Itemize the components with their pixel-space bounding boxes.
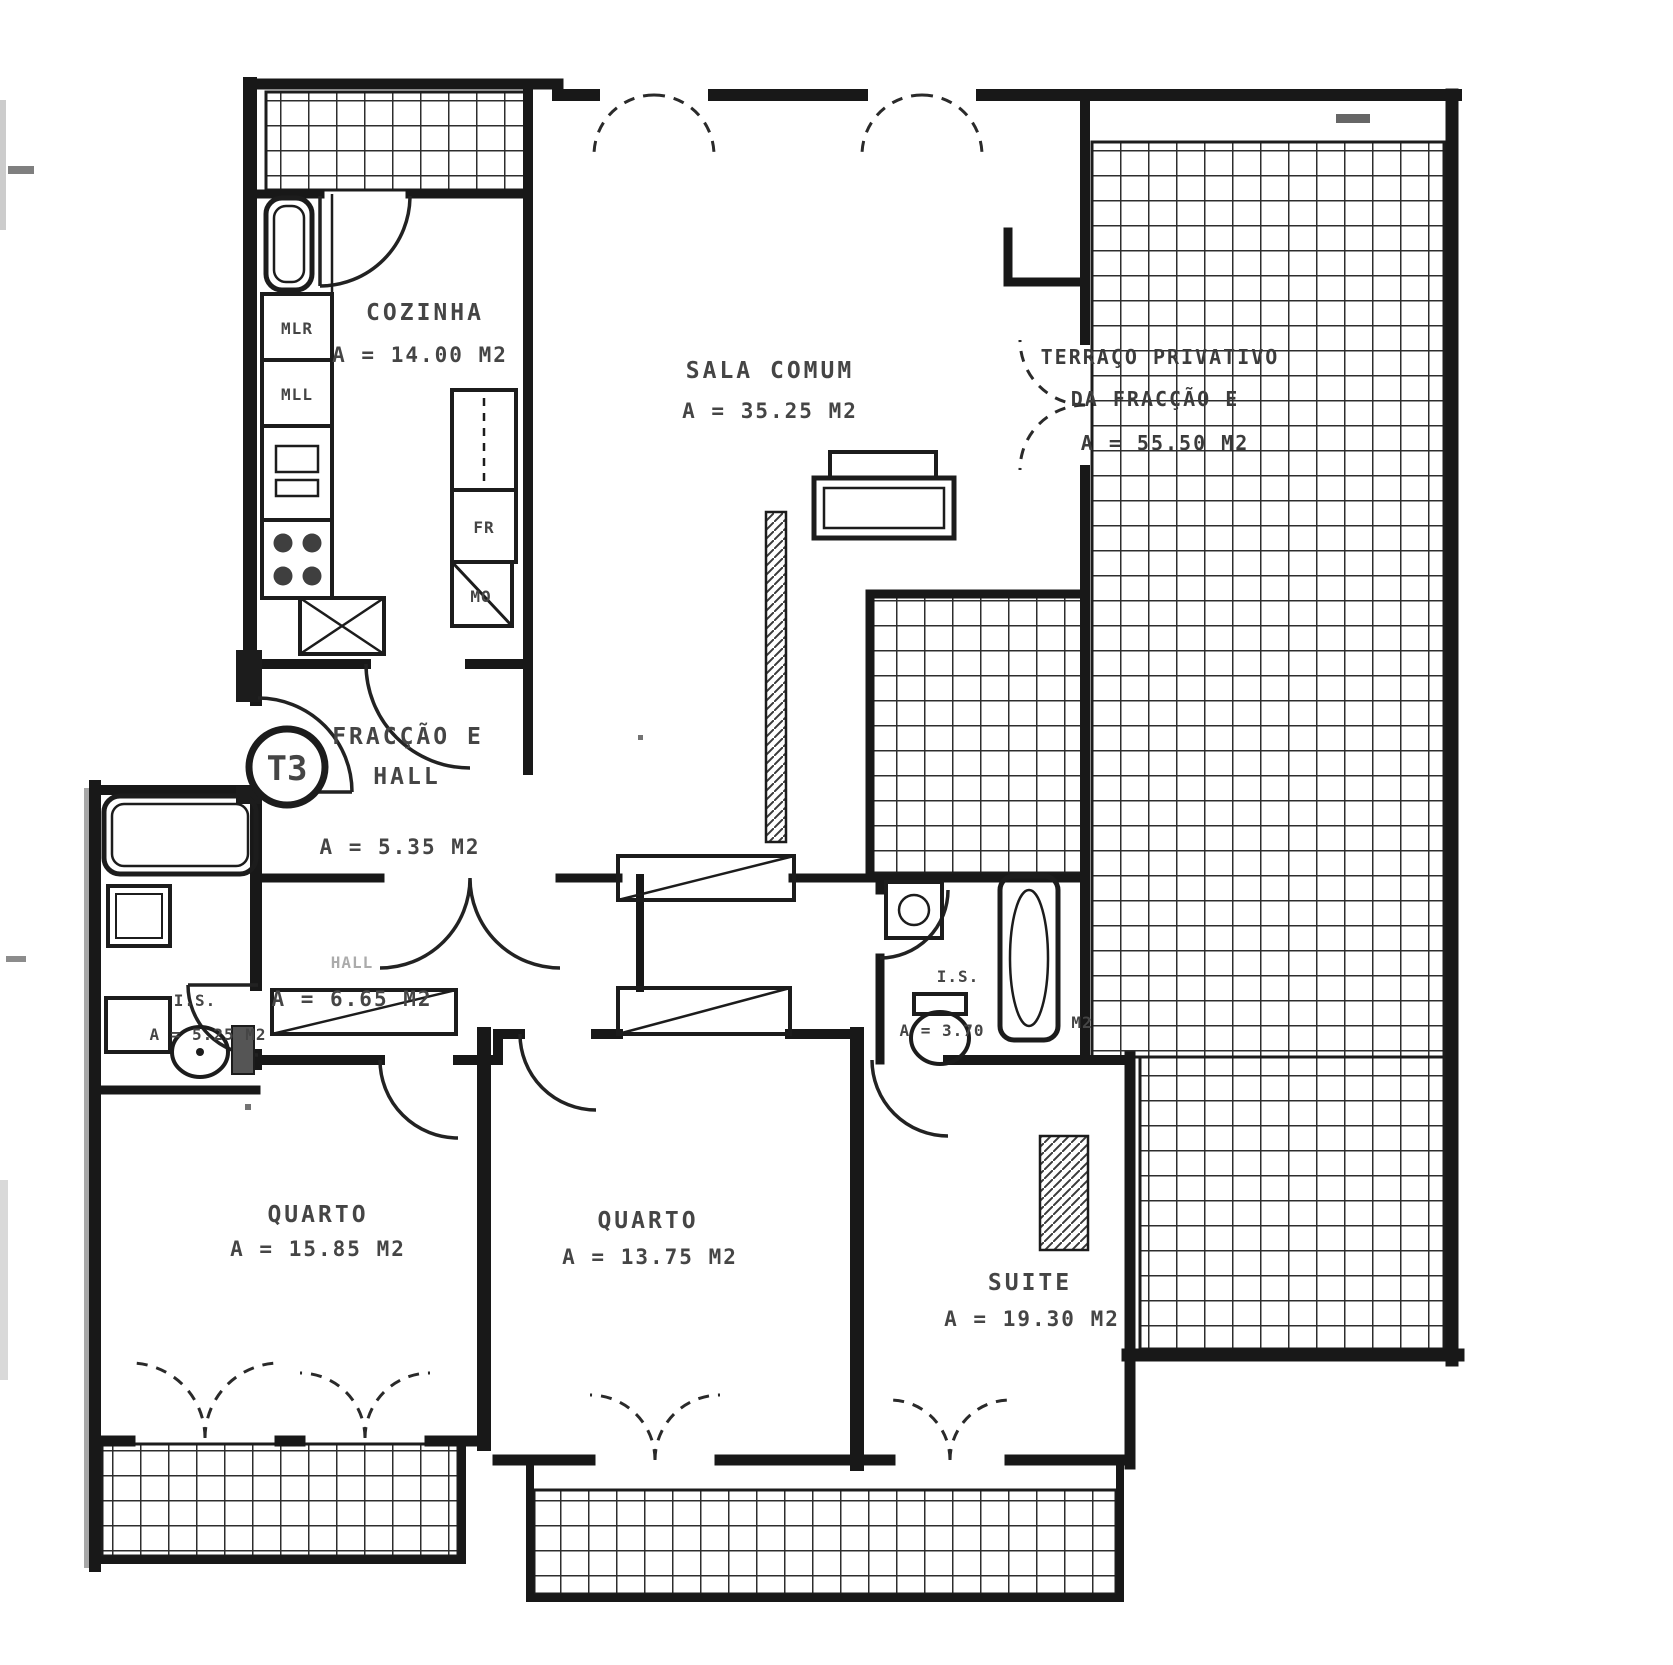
- hall-name: HALL: [331, 953, 374, 972]
- quarto-middle-area: A = 13.75 M2: [562, 1245, 738, 1269]
- closet: [618, 856, 794, 900]
- balcony-right-tiles: [534, 1490, 1116, 1594]
- bathtub: [1000, 876, 1058, 1040]
- suite-shaft: [1040, 1136, 1088, 1250]
- quarto-left-name: QUARTO: [267, 1202, 368, 1228]
- balcony-left-tiles: [102, 1444, 458, 1556]
- quarto-left-door: [380, 1060, 458, 1138]
- terraco-name-line2: DA FRACÇÃO E: [1071, 387, 1240, 411]
- terraco-area: A = 55.50 M2: [1081, 431, 1250, 455]
- unit-badge: T3: [249, 729, 325, 805]
- hall-entrada-area: A = 5.35 M2: [319, 835, 480, 859]
- cooktop: [262, 520, 332, 598]
- kitchen-balcony-tiles: [266, 92, 526, 190]
- sala-furniture: [814, 452, 954, 538]
- hall-entrada-line1: FRACÇÃO E: [332, 722, 484, 750]
- bathtub: [104, 796, 256, 874]
- closet: [618, 988, 790, 1034]
- is-left-area: A = 5.25 M2: [150, 1025, 267, 1044]
- quarto-middle-name: QUARTO: [597, 1208, 698, 1234]
- kitchen-hall-door: [366, 664, 470, 768]
- is-right-area: A = 3.70: [899, 1021, 984, 1040]
- terrace-tiles: [1092, 142, 1444, 1057]
- sala-name: SALA COMUM: [686, 358, 854, 384]
- terrace-lower-tiles: [1140, 1057, 1444, 1349]
- sala-area: A = 35.25 M2: [682, 399, 858, 423]
- cozinha-area: A = 14.00 M2: [332, 343, 508, 367]
- suite-area: A = 19.30 M2: [944, 1307, 1120, 1331]
- terraco-name-line1: TERRAÇO PRIVATIVO: [1041, 345, 1280, 369]
- cozinha-name: COZINHA: [366, 300, 484, 326]
- is-right-unit: M2: [1071, 1013, 1092, 1032]
- hall-double-door: [380, 878, 560, 968]
- washing-machine-label: MLR: [281, 319, 313, 338]
- dishwasher-label: MLL: [281, 385, 313, 404]
- microwave-label: MO: [470, 587, 491, 606]
- is-left-name: I.S.: [174, 991, 217, 1010]
- is-right-name: I.S.: [937, 967, 980, 986]
- hall-area: A = 6.65 M2: [271, 987, 432, 1011]
- kitchen-fixtures: [262, 194, 516, 654]
- hall-entrada-line2: HALL: [373, 764, 440, 790]
- quarto-middle-door: [520, 1034, 596, 1110]
- balcony-kitchen-door: [320, 196, 410, 286]
- suite-door: [872, 1060, 948, 1136]
- floor-plan: T3 COZINHA A = 14.00 M2 SALA COMUM A = 3…: [0, 0, 1673, 1665]
- quarto-left-area: A = 15.85 M2: [230, 1237, 406, 1261]
- unit-badge-label: T3: [267, 749, 308, 789]
- shaft-wall: [766, 512, 786, 842]
- fridge-label: FR: [473, 518, 494, 537]
- suite-name: SUITE: [988, 1270, 1072, 1296]
- floor-plan-drawing: T3 COZINHA A = 14.00 M2 SALA COMUM A = 3…: [0, 0, 1673, 1665]
- courtyard-tiles: [870, 594, 1083, 873]
